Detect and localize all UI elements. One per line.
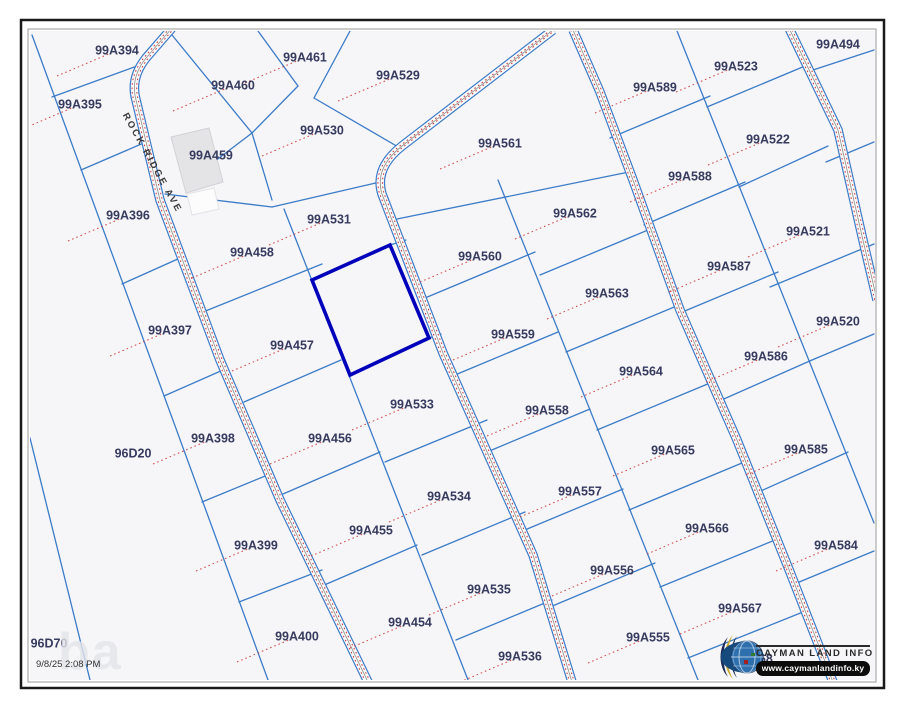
parcel-label-99A555[interactable]: 99A555 <box>626 631 670 645</box>
parcel-label-99A567[interactable]: 99A567 <box>718 602 762 616</box>
export-timestamp: 9/8/25 2:08 PM <box>36 659 100 670</box>
parcel-label-99A535[interactable]: 99A535 <box>467 583 511 597</box>
parcel-label-99A458[interactable]: 99A458 <box>230 246 274 260</box>
parcel-label-99A455[interactable]: 99A455 <box>349 524 393 538</box>
parcel-label-99A494[interactable]: 99A494 <box>816 38 860 52</box>
parcel-label-96D20[interactable]: 96D20 <box>115 447 152 461</box>
logo-url[interactable]: www.caymanlandinfo.ky <box>756 661 870 676</box>
parcel-label-99A457[interactable]: 99A457 <box>270 339 314 353</box>
parcel-label-99A460[interactable]: 99A460 <box>211 79 255 93</box>
watermark-text: ba <box>58 622 123 682</box>
parcel-label-99A459[interactable]: 99A459 <box>189 149 233 163</box>
parcel-label-99A589[interactable]: 99A589 <box>633 81 677 95</box>
parcel-map-canvas[interactable]: 99A39499A39599A39699A39799A39899A39999A4… <box>0 0 905 710</box>
parcel-label-99A557[interactable]: 99A557 <box>558 485 602 499</box>
parcel-label-99A533[interactable]: 99A533 <box>390 398 434 412</box>
parcel-label-99A520[interactable]: 99A520 <box>816 315 860 329</box>
parcel-label-99A564[interactable]: 99A564 <box>619 365 663 379</box>
parcel-label-99A565[interactable]: 99A565 <box>651 444 695 458</box>
parcel-label-99A587[interactable]: 99A587 <box>707 260 751 274</box>
parcel-label-99A529[interactable]: 99A529 <box>376 69 420 83</box>
parcel-label-99A396[interactable]: 99A396 <box>106 209 150 223</box>
parcel-label-99A586[interactable]: 99A586 <box>744 350 788 364</box>
parcel-label-99A521[interactable]: 99A521 <box>786 225 830 239</box>
parcel-label-99A456[interactable]: 99A456 <box>308 432 352 446</box>
parcel-label-99A559[interactable]: 99A559 <box>491 328 535 342</box>
parcel-label-99A522[interactable]: 99A522 <box>746 133 790 147</box>
parcel-label-99A556[interactable]: 99A556 <box>590 564 634 578</box>
parcel-label-99A562[interactable]: 99A562 <box>553 207 597 221</box>
parcel-label-99A588[interactable]: 99A588 <box>668 170 712 184</box>
parcel-label-99A534[interactable]: 99A534 <box>427 490 471 504</box>
parcel-label-99A584[interactable]: 99A584 <box>814 539 858 553</box>
parcel-label-99A585[interactable]: 99A585 <box>784 443 828 457</box>
parcel-label-99A523[interactable]: 99A523 <box>714 60 758 74</box>
parcel-label-99A397[interactable]: 99A397 <box>148 324 192 338</box>
parcel-label-99A400[interactable]: 99A400 <box>275 630 319 644</box>
parcel-label-99A561[interactable]: 99A561 <box>478 137 522 151</box>
parcel-label-99A566[interactable]: 99A566 <box>685 522 729 536</box>
parcel-label-99A454[interactable]: 99A454 <box>388 616 432 630</box>
parcel-label-99A560[interactable]: 99A560 <box>458 250 502 264</box>
parcel-label-99A398[interactable]: 99A398 <box>191 432 235 446</box>
parcel-label-99A536[interactable]: 99A536 <box>498 650 542 664</box>
parcel-label-99A531[interactable]: 99A531 <box>307 213 351 227</box>
parcel-label-99A558[interactable]: 99A558 <box>525 404 569 418</box>
parcel-label-99A563[interactable]: 99A563 <box>585 287 629 301</box>
parcel-label-99A399[interactable]: 99A399 <box>234 539 278 553</box>
parcel-label-99A530[interactable]: 99A530 <box>300 124 344 138</box>
logo-title: CAYMAN LAND INFO <box>756 645 870 659</box>
parcel-label-99A395[interactable]: 99A395 <box>58 98 102 112</box>
parcel-label-99A461[interactable]: 99A461 <box>283 51 327 65</box>
parcel-label-99A394[interactable]: 99A394 <box>95 44 139 58</box>
map-export-page: 99A39499A39599A39699A39799A39899A39999A4… <box>0 0 905 710</box>
cayman-land-info-logo: CAYMAN LAND INFO www.caymanlandinfo.ky <box>720 633 874 681</box>
